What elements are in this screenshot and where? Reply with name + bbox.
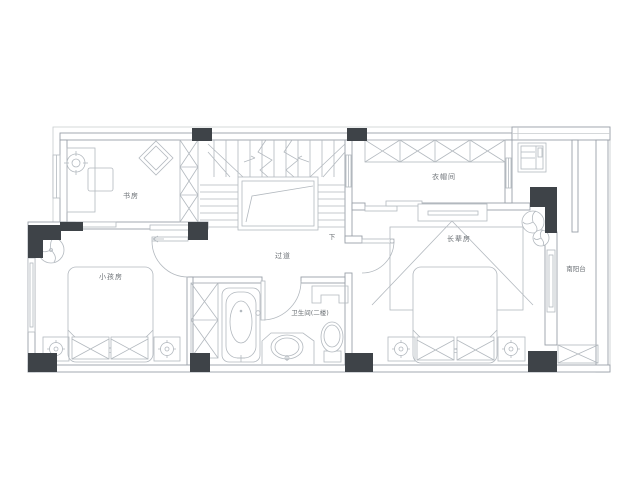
nightstand [154, 337, 180, 361]
linen-closet [191, 283, 218, 358]
cloakroom-window [506, 158, 511, 188]
kids-room-label: 小孩房 [99, 272, 123, 282]
cloakroom-label: 衣帽间 [432, 172, 456, 182]
hallway-label: 过道 [275, 251, 291, 261]
toilet [321, 322, 343, 362]
cabinet [518, 143, 546, 172]
balcony-furniture [558, 345, 598, 363]
elders-room-door [362, 239, 394, 273]
balcony-window [547, 250, 555, 312]
bathroom-furniture [191, 281, 348, 364]
study-chair [139, 141, 173, 175]
study-furniture [64, 141, 194, 230]
balcony-cabinet [558, 345, 598, 363]
study-sliding-door [150, 225, 194, 230]
elders-room-label: 长辈房 [447, 234, 471, 244]
bathroom-label: 卫生间(二楼) [291, 307, 329, 317]
study-window [53, 155, 60, 198]
stair-closet [180, 140, 198, 222]
stairs-down-label: 下 [329, 231, 336, 241]
elders-bed [413, 267, 497, 363]
study-label: 书房 [123, 191, 139, 201]
cloakroom-sliding-door [365, 206, 397, 211]
fan-icon [522, 211, 549, 246]
stairs [180, 140, 345, 230]
bathtub [222, 288, 260, 362]
study-desk [88, 168, 113, 191]
nightstand [498, 337, 525, 361]
stair-cut-line [246, 186, 313, 222]
bathroom-shelf [312, 286, 348, 303]
floor-plan: 书房 衣帽间 小孩房 长辈房 过道 卫生间(二楼) 南阳台 下 [0, 0, 630, 500]
nightstand [388, 337, 415, 361]
headboard-console [418, 204, 487, 221]
study-counter [67, 148, 95, 212]
wardrobe [365, 140, 505, 162]
kids-room-door [152, 236, 188, 277]
floor-plan-drawing [0, 0, 630, 500]
ceiling-lamp-icon [64, 151, 88, 175]
stair-winders [208, 144, 345, 177]
kids-room-furniture [38, 236, 188, 362]
vanity-sink [262, 333, 314, 364]
stair-direction-arrows [244, 156, 309, 162]
stair-treads-right [318, 185, 345, 227]
kids-room-window [28, 258, 35, 332]
stair-window [346, 155, 351, 187]
elders-room-furniture [362, 204, 549, 363]
south-balcony-label: 南阳台 [566, 263, 586, 273]
stair-break-lines [258, 140, 298, 177]
stair-treads-left [200, 185, 238, 227]
cloakroom-sliding-door [386, 201, 422, 206]
